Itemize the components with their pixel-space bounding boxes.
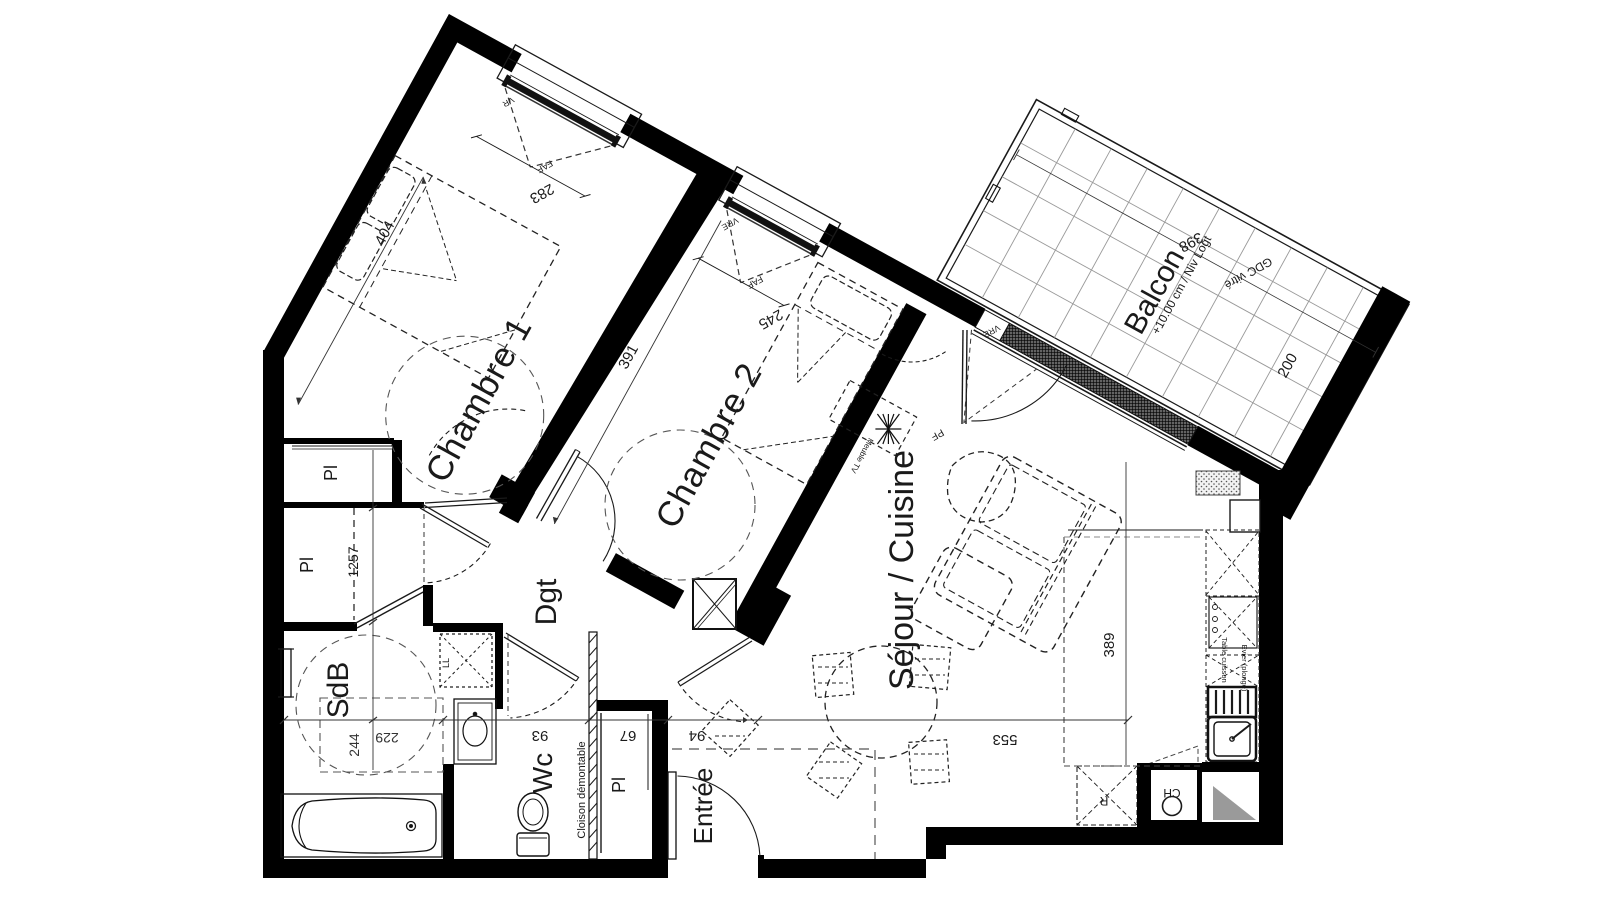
svg-text:Pl: Pl	[321, 465, 341, 481]
svg-text:Dgt: Dgt	[530, 578, 563, 625]
svg-text:229: 229	[375, 730, 399, 746]
svg-text:1257: 1257	[345, 546, 361, 577]
svg-text:Wc: Wc	[527, 753, 558, 793]
svg-text:389: 389	[1101, 632, 1118, 657]
svg-text:94: 94	[689, 727, 706, 744]
svg-text:553: 553	[992, 731, 1017, 748]
svg-text:93: 93	[532, 727, 549, 744]
svg-text:Pl: Pl	[297, 557, 317, 573]
svg-text:Pl: Pl	[609, 777, 629, 793]
svg-text:SdB: SdB	[322, 662, 355, 719]
svg-text:Table cuisson: Table cuisson	[1220, 637, 1229, 682]
svg-text:R: R	[1099, 794, 1108, 808]
svg-text:Evier (plonge): Evier (plonge)	[1240, 645, 1249, 692]
svg-text:Séjour / Cuisine: Séjour / Cuisine	[883, 450, 921, 690]
svg-text:244: 244	[346, 733, 362, 757]
svg-text:Entrée: Entrée	[688, 768, 718, 845]
svg-text:67: 67	[620, 727, 637, 744]
svg-text:Cloison démontable: Cloison démontable	[576, 741, 588, 838]
svg-text:LL: LL	[441, 658, 451, 668]
